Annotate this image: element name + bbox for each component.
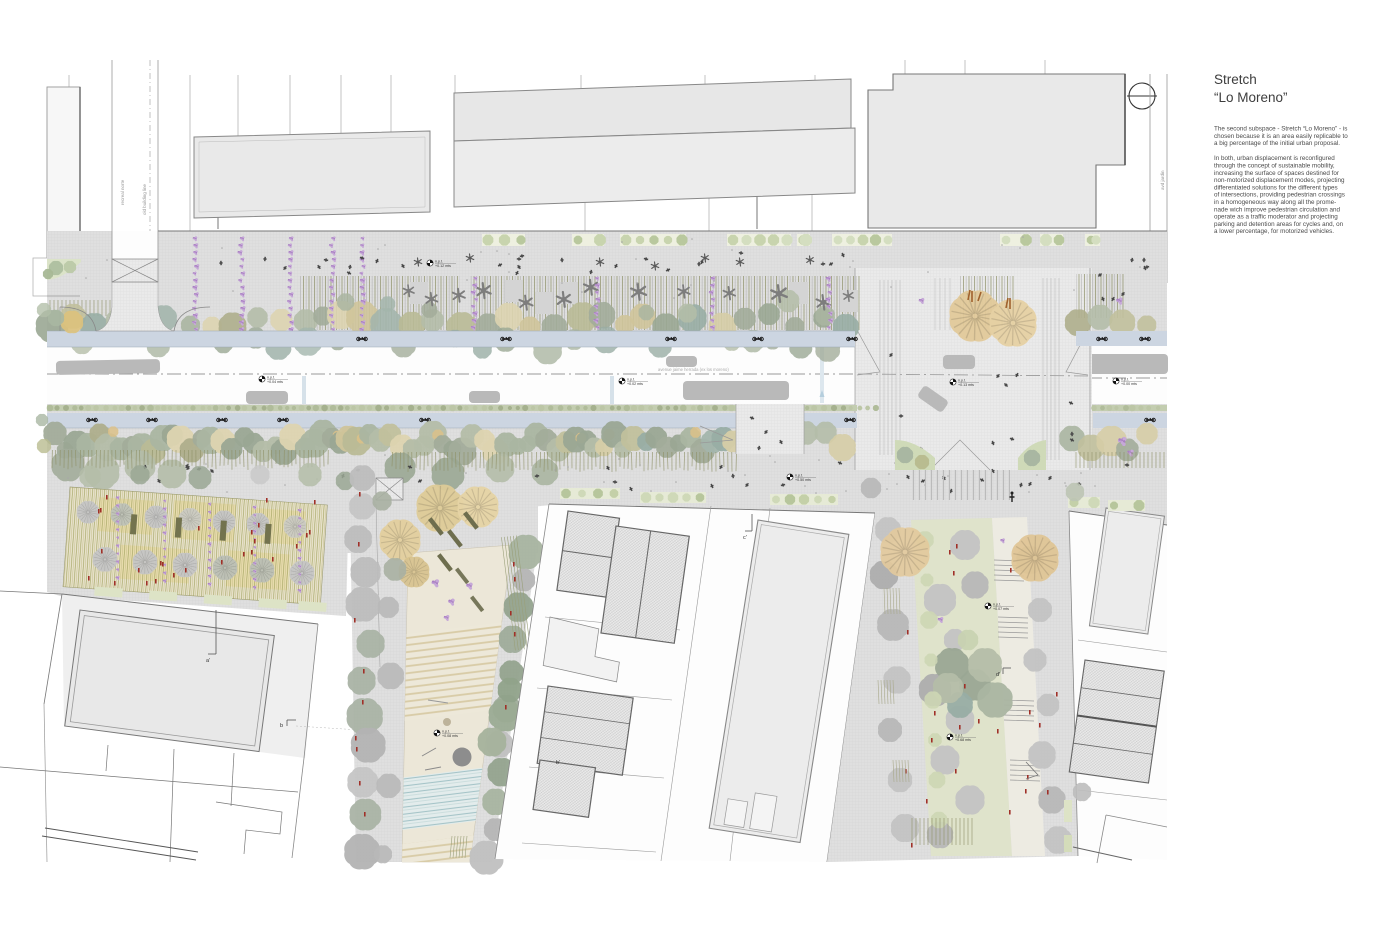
svg-text:parking and detention areas fo: parking and detention areas for cycles a…: [1214, 221, 1344, 228]
svg-text:In both, urban displacement is: In both, urban displacement is reconfigu…: [1214, 155, 1335, 162]
svg-text:differentiated solutions for t: differentiated solutions for the differe…: [1214, 184, 1338, 191]
svg-text:Stretch: Stretch: [1214, 72, 1257, 87]
svg-text:b: b: [280, 723, 283, 729]
svg-text:b': b': [556, 760, 560, 766]
svg-text:d': d': [996, 672, 1000, 678]
svg-text:+0.02 mts: +0.02 mts: [627, 382, 643, 386]
svg-text:The second subspace - Stretch: The second subspace - Stretch “Lo Moreno…: [1214, 126, 1347, 133]
svg-text:+0.08 mts: +0.08 mts: [442, 734, 458, 738]
svg-text:avenue jaime herrada (ex los m: avenue jaime herrada (ex los moreno): [658, 367, 729, 372]
svg-text:+0.68 mts: +0.68 mts: [955, 738, 971, 742]
svg-text:a lower percentage, for motori: a lower percentage, for motorized vehicl…: [1214, 228, 1334, 235]
svg-text:of intersections, providing pe: of intersections, providing pedestrian c…: [1214, 192, 1345, 199]
svg-text:c': c': [743, 535, 747, 541]
svg-text:+0.13 mts: +0.13 mts: [958, 383, 974, 387]
svg-text:+0.00 mts: +0.00 mts: [1121, 382, 1137, 386]
svg-text:+0.12 mts: +0.12 mts: [435, 264, 451, 268]
svg-text:“Lo Moreno”: “Lo Moreno”: [1214, 90, 1288, 105]
svg-text:chosen because it is an area e: chosen because it is an area easily repl…: [1214, 133, 1348, 140]
svg-text:recreal norte: recreal norte: [120, 179, 125, 205]
svg-text:operate as a traffic moderator: operate as a traffic moderator and proje…: [1214, 214, 1338, 221]
svg-text:+0.50 mts: +0.50 mts: [795, 478, 811, 482]
svg-text:+0.07 mts: +0.07 mts: [993, 607, 1009, 611]
svg-text:in a homogeneous way along all: in a homogeneous way along all the prome…: [1214, 199, 1336, 206]
svg-text:a': a': [206, 658, 210, 664]
svg-text:avd jardin: avd jardin: [1160, 170, 1165, 190]
svg-text:a big percentage of the initia: a big percentage of the initial urban pr…: [1214, 140, 1340, 147]
svg-text:non-motorized displacement mod: non-motorized displacement modes, projec…: [1214, 177, 1345, 184]
svg-text:nade wich improve pedestrian c: nade wich improve pedestrian circulation…: [1214, 206, 1341, 213]
svg-text:+0.04 mts: +0.04 mts: [267, 380, 283, 384]
svg-text:increasing the surface of spac: increasing the surface of spaces destine…: [1214, 170, 1339, 177]
svg-text:old building line: old building line: [142, 183, 147, 215]
svg-text:through the concept of sustain: through the concept of sustainable mobil…: [1214, 163, 1335, 170]
